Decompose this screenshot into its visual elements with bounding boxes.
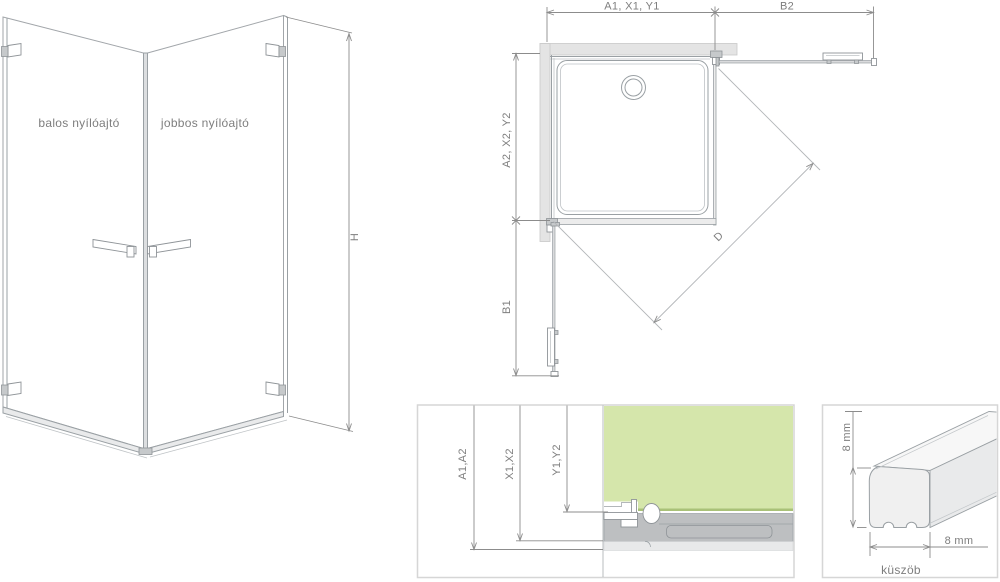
wall-top [540, 44, 737, 56]
door-right-width-label: B2 [780, 1, 794, 13]
tray-groove [667, 526, 773, 539]
door-left-width-label: B1 [501, 300, 513, 314]
right-door-label: jobbos nyílóajtó [160, 116, 249, 130]
right-door-open [716, 53, 877, 66]
left-door-label: balos nyílóajtó [38, 116, 119, 130]
right-door-glass [148, 16, 284, 449]
threshold-caption: küszöb [881, 563, 921, 577]
section-detail-panel: A1,A2 X1,X2 Y1,Y2 [418, 405, 795, 578]
seal-profile-bar [604, 513, 638, 520]
shower-enclosure-technical-drawing: balos nyílóajtó jobbos nyílóajtó H [0, 0, 1000, 582]
threshold-front-face [869, 467, 929, 528]
dim-mid-label: X1,X2 [504, 448, 516, 479]
door-swing-diagonal-dimension: D [554, 69, 821, 331]
top-width-label: A1, X1, Y1 [604, 1, 659, 13]
height-dimension-label: H [349, 233, 361, 241]
threshold-width-label: 8 mm [945, 535, 974, 547]
glass-panel-section [604, 406, 793, 509]
seal-bulb [643, 504, 660, 524]
left-door-open [548, 223, 560, 377]
shower-tray [557, 61, 708, 215]
isometric-view: balos nyílóajtó jobbos nyílóajtó H [2, 16, 362, 459]
corner-foot [139, 448, 152, 455]
threshold-detail-panel: 8 mm 8 mm küszöb [823, 405, 1000, 578]
wall-left [540, 44, 550, 242]
right-door-open-handle [823, 53, 863, 60]
dim-inner-label: Y1,Y2 [551, 444, 563, 475]
left-door-glass [3, 17, 144, 449]
seal-profile-foot [621, 520, 638, 528]
diagonal-label: D [712, 230, 726, 244]
height-dimension: H [286, 17, 361, 432]
side-depth-label: A2, X2, Y2 [501, 112, 513, 167]
threshold-height-label: 8 mm [841, 423, 853, 452]
dim-outer-label: A1,A2 [457, 448, 469, 479]
enclosure-frame [550, 51, 716, 225]
plan-view: D A1, X1, Y1 B2 A2, X2, Y2 B1 [501, 1, 877, 377]
corner-profile [144, 53, 148, 454]
glass-bottom-seal-edge [638, 509, 793, 512]
light-base-band [604, 542, 793, 551]
left-door-open-handle [548, 328, 555, 366]
